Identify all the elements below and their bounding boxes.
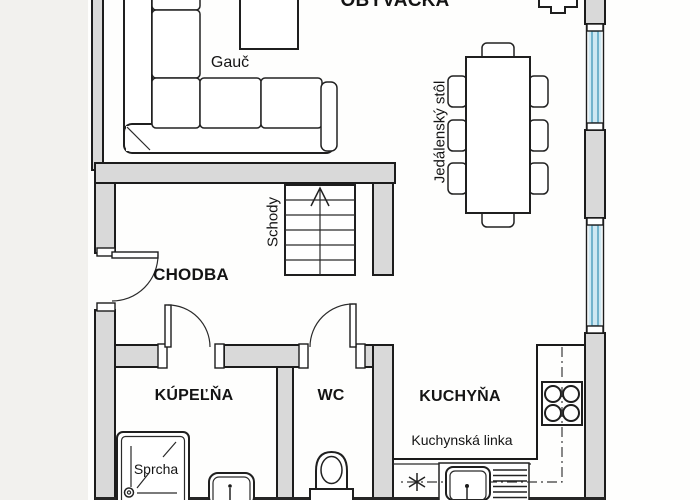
faucet-dot	[465, 484, 469, 488]
door-frame	[97, 303, 115, 311]
dining-chair	[448, 120, 467, 151]
door-frame	[299, 344, 308, 368]
floor-plan: OBÝVAČKA CHODBA KÚPEĽŇA WC KUCHYŇA Gauč …	[0, 0, 700, 500]
window-cap	[587, 24, 603, 31]
dining-table	[466, 57, 530, 213]
hallway-label: CHODBA	[153, 265, 229, 285]
wall-livingroom-bottom	[95, 163, 395, 183]
wall-wc-kitchen	[373, 345, 393, 500]
door-leaf	[350, 304, 356, 347]
sofa-cushion	[200, 78, 261, 128]
toilet-tank	[310, 489, 353, 500]
floor-plan-drawing	[0, 0, 700, 500]
wall-right-lower	[585, 333, 605, 500]
window-cap	[587, 218, 603, 225]
door-frame	[215, 344, 224, 368]
sofa-cushion	[261, 78, 322, 128]
stove-burner	[563, 405, 579, 421]
dining-chair	[448, 76, 467, 107]
dining-chair	[529, 120, 548, 151]
window-cap	[587, 326, 603, 333]
sofa-cushion	[152, 10, 200, 78]
door-leaf	[165, 305, 171, 347]
shower-label: Sprcha	[134, 461, 178, 477]
door-frame	[356, 344, 365, 368]
window-glass	[589, 225, 602, 326]
sofa-corner-cushion	[152, 78, 200, 128]
dining-chair	[529, 76, 548, 107]
dining-table-label: Jedálenský stôl	[432, 81, 449, 184]
kitchen-label: KUCHYŇA	[419, 388, 500, 406]
dining-chair	[529, 163, 548, 194]
wall-left-lower	[95, 310, 115, 500]
stairs-label: Schody	[265, 197, 282, 247]
bathroom-sink	[209, 473, 254, 500]
wall-left-mid	[95, 183, 115, 253]
coffee-table	[240, 0, 298, 49]
wall-hall-bathroom-2	[224, 345, 301, 367]
kitchen-counter-label: Kuchynská linka	[411, 432, 512, 448]
wall-left-upper	[92, 0, 103, 170]
stove-burner	[545, 405, 561, 421]
living-room-label: OBÝVAČKA	[341, 0, 450, 12]
window-upper	[587, 24, 604, 130]
faucet-dot	[228, 484, 232, 488]
wc-label: WC	[317, 387, 344, 405]
wall-right-top	[585, 0, 605, 24]
bathroom-label: KÚPEĽŇA	[155, 387, 234, 405]
sofa-label: Gauč	[211, 54, 249, 72]
stairs	[285, 185, 355, 275]
wall-bathroom-wc-divider	[277, 367, 293, 500]
stove-burner	[545, 386, 561, 402]
door-leaf	[112, 252, 158, 258]
sofa-cushion	[152, 0, 200, 10]
window-lower	[587, 218, 604, 333]
window-cap	[587, 123, 603, 130]
dining-chair	[448, 163, 467, 194]
window-glass	[589, 31, 602, 123]
wall-stairs-right	[373, 183, 393, 275]
wall-hall-bathroom-1	[115, 345, 160, 367]
sofa-armrest	[321, 82, 337, 151]
wall-right-mid	[585, 130, 605, 218]
stove-burner	[563, 386, 579, 402]
